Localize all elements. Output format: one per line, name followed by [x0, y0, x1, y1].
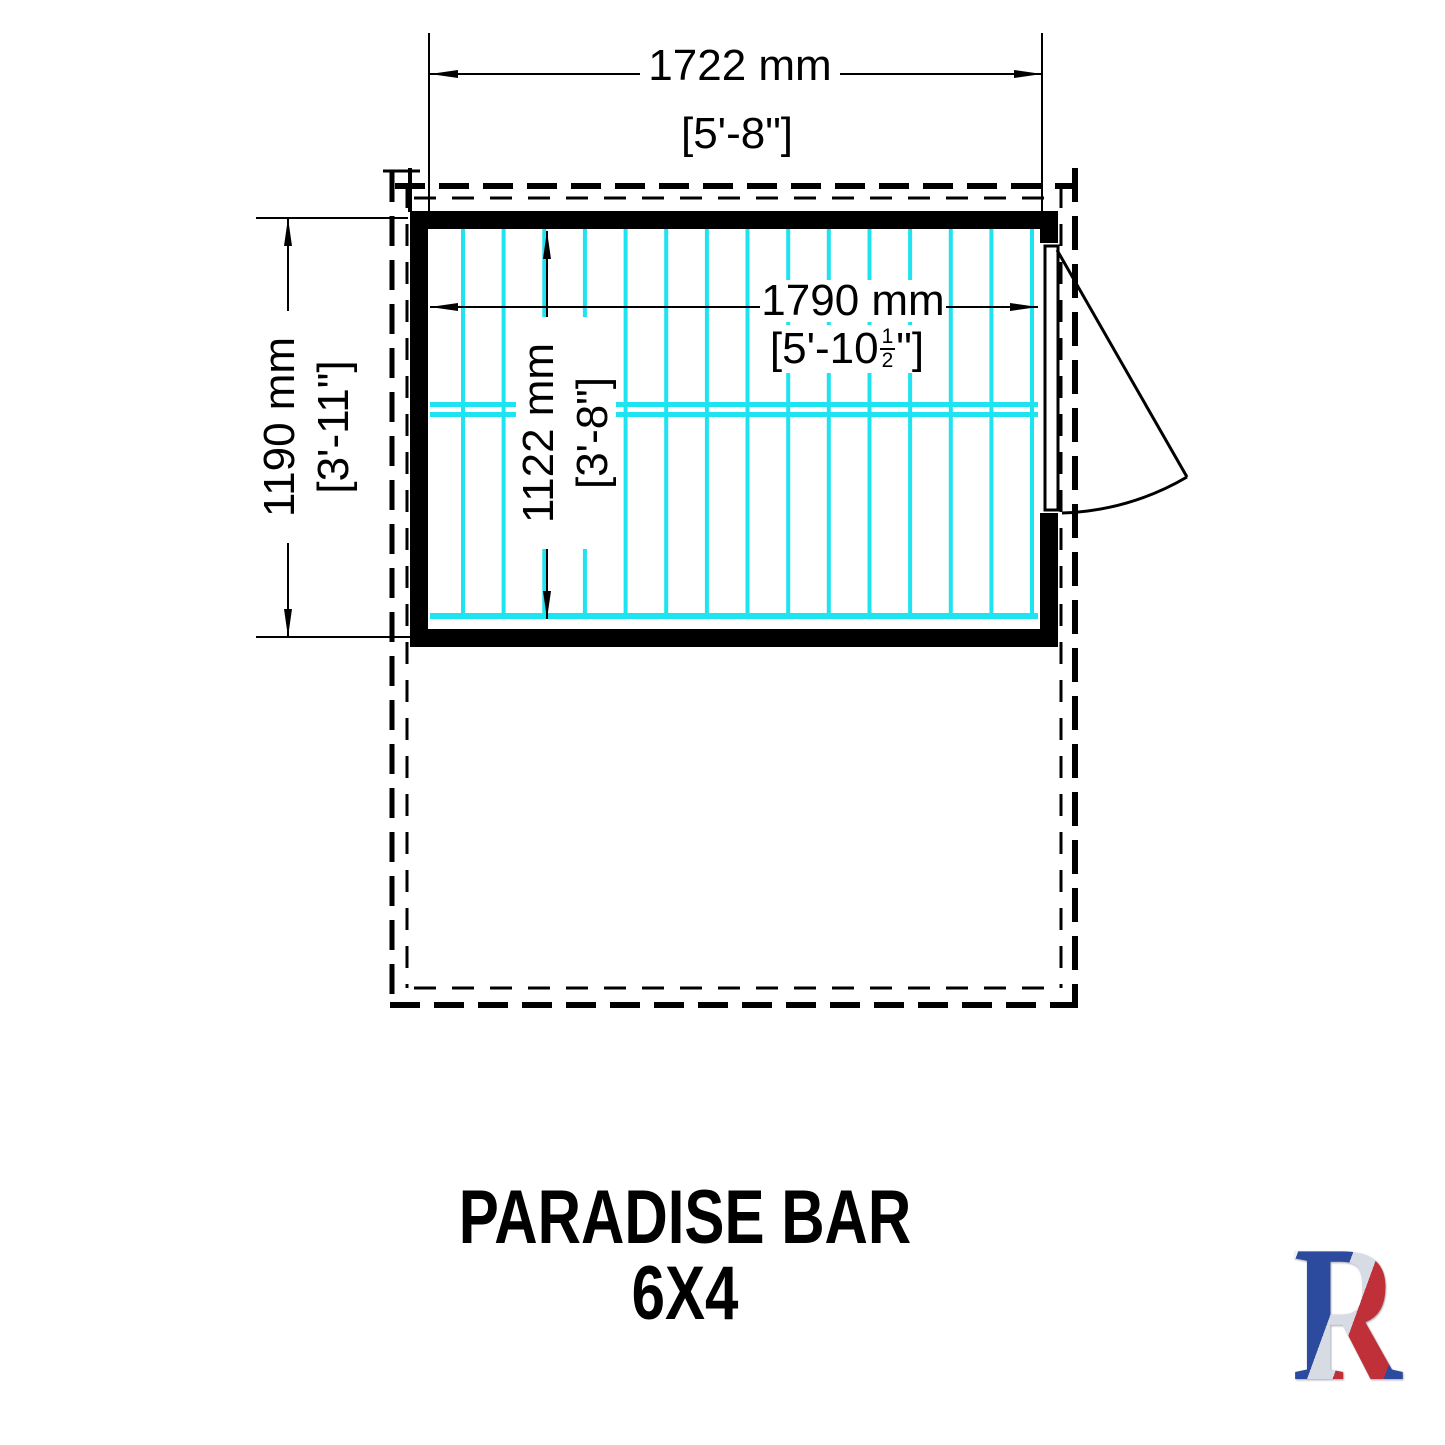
internal-width-mm-label: 1790 mm — [760, 280, 946, 322]
shire-logo: S H I R E — [1052, 1250, 1426, 1390]
overall-depth-imperial-label: [3'-11"] — [307, 360, 361, 493]
logo-letter-h: H — [1117, 1243, 1229, 1387]
logo-letter-s: S — [1052, 1266, 1117, 1383]
internal-depth-label: 1122 mm [3'-8"] — [516, 317, 616, 549]
internal-depth-mm-label: 1122 mm — [512, 343, 566, 523]
overall-depth-mm-label: 1190 mm — [253, 337, 307, 517]
logo-letter-e: E — [1401, 1272, 1445, 1393]
logo-tagline: BUILT AROUND OUR REPUTATION — [1048, 1391, 1428, 1414]
product-title: PARADISE BAR 6X4 — [409, 1180, 962, 1332]
overall-width-mm-label: 1722 mm — [640, 44, 840, 88]
overall-depth-label: 1190 mm [3'-11"] — [257, 311, 357, 543]
imperial-post: "] — [896, 327, 924, 371]
roof-outline — [383, 168, 1078, 1005]
overall-width-imperial-label: [5'-8"] — [657, 111, 817, 157]
logo-letter-i: I — [1229, 1229, 1291, 1389]
imperial-pre: [5'-10 — [770, 327, 879, 371]
logo-letter-r: R — [1292, 1238, 1402, 1390]
door-swing-arc — [1062, 477, 1187, 513]
door-leaf — [1045, 246, 1058, 510]
plan-drawing-page: 1722 mm [5'-8"] 1190 mm [3'-11"] 1790 mm… — [0, 0, 1445, 1445]
internal-width-imperial-label: [5'-1012"] — [759, 325, 935, 373]
door — [1045, 246, 1187, 513]
half-fraction: 12 — [880, 326, 896, 372]
internal-depth-imperial-label: [3'-8"] — [566, 377, 620, 489]
